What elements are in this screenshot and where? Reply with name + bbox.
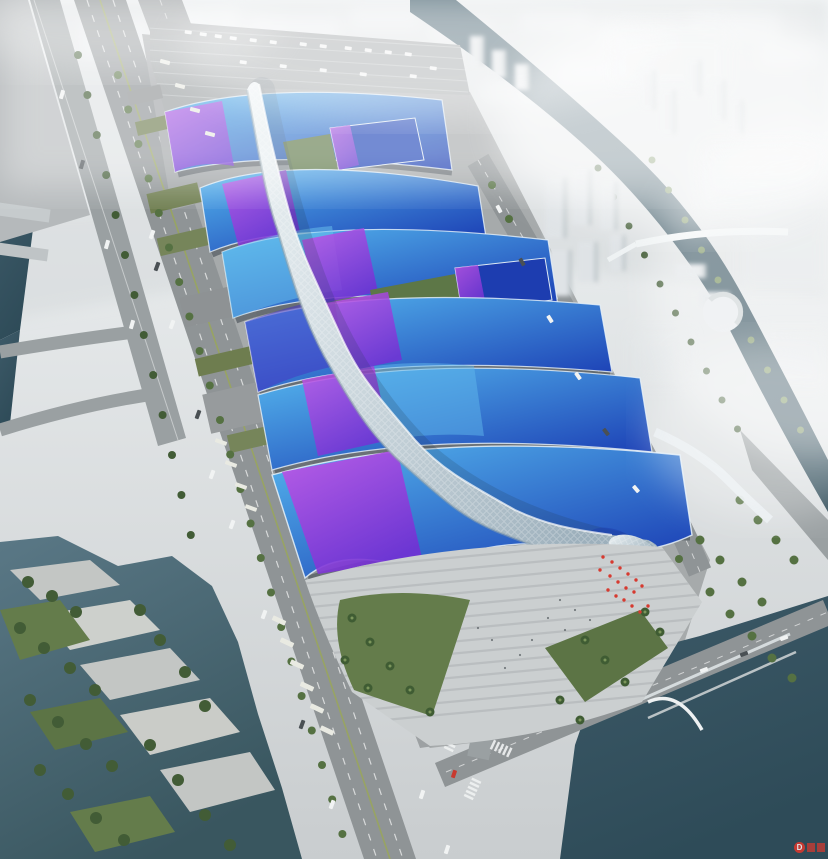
aerial-render: Aerial rendering of a large exhibition a… [0,0,828,859]
watermark: D [794,842,825,853]
watermark-logo: D [794,842,805,853]
watermark-glyph [817,843,825,852]
aerial-render-canvas: Aerial rendering of a large exhibition a… [0,0,828,859]
watermark-glyph [807,843,815,852]
